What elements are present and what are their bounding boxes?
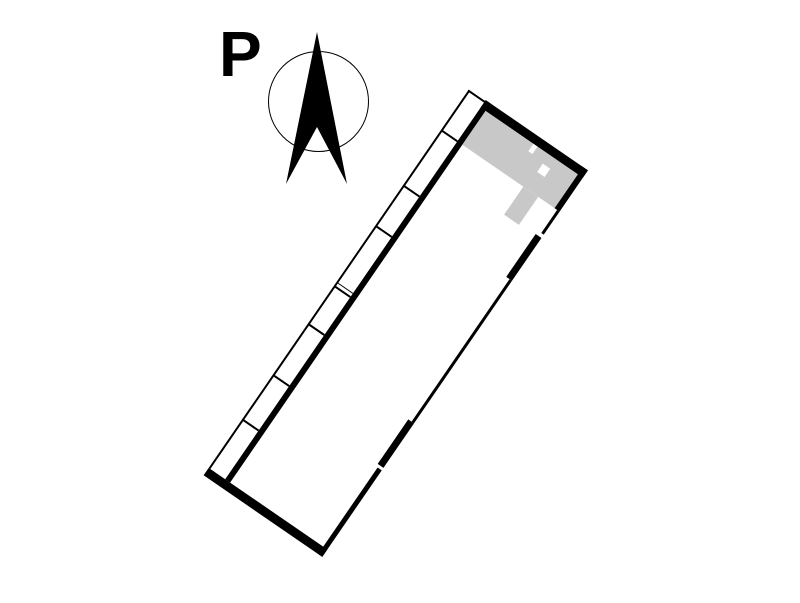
right-wall-segment: [411, 279, 512, 423]
floor-plan: [204, 89, 588, 557]
right-wall-segment: [318, 467, 382, 557]
north-arrow-icon: [283, 30, 350, 186]
site-plan-canvas: P: [0, 0, 800, 603]
right-wall-segment: [506, 234, 541, 281]
north-label: P: [219, 22, 262, 86]
right-wall-segment: [378, 419, 414, 467]
right-wall-segment: [541, 210, 559, 235]
